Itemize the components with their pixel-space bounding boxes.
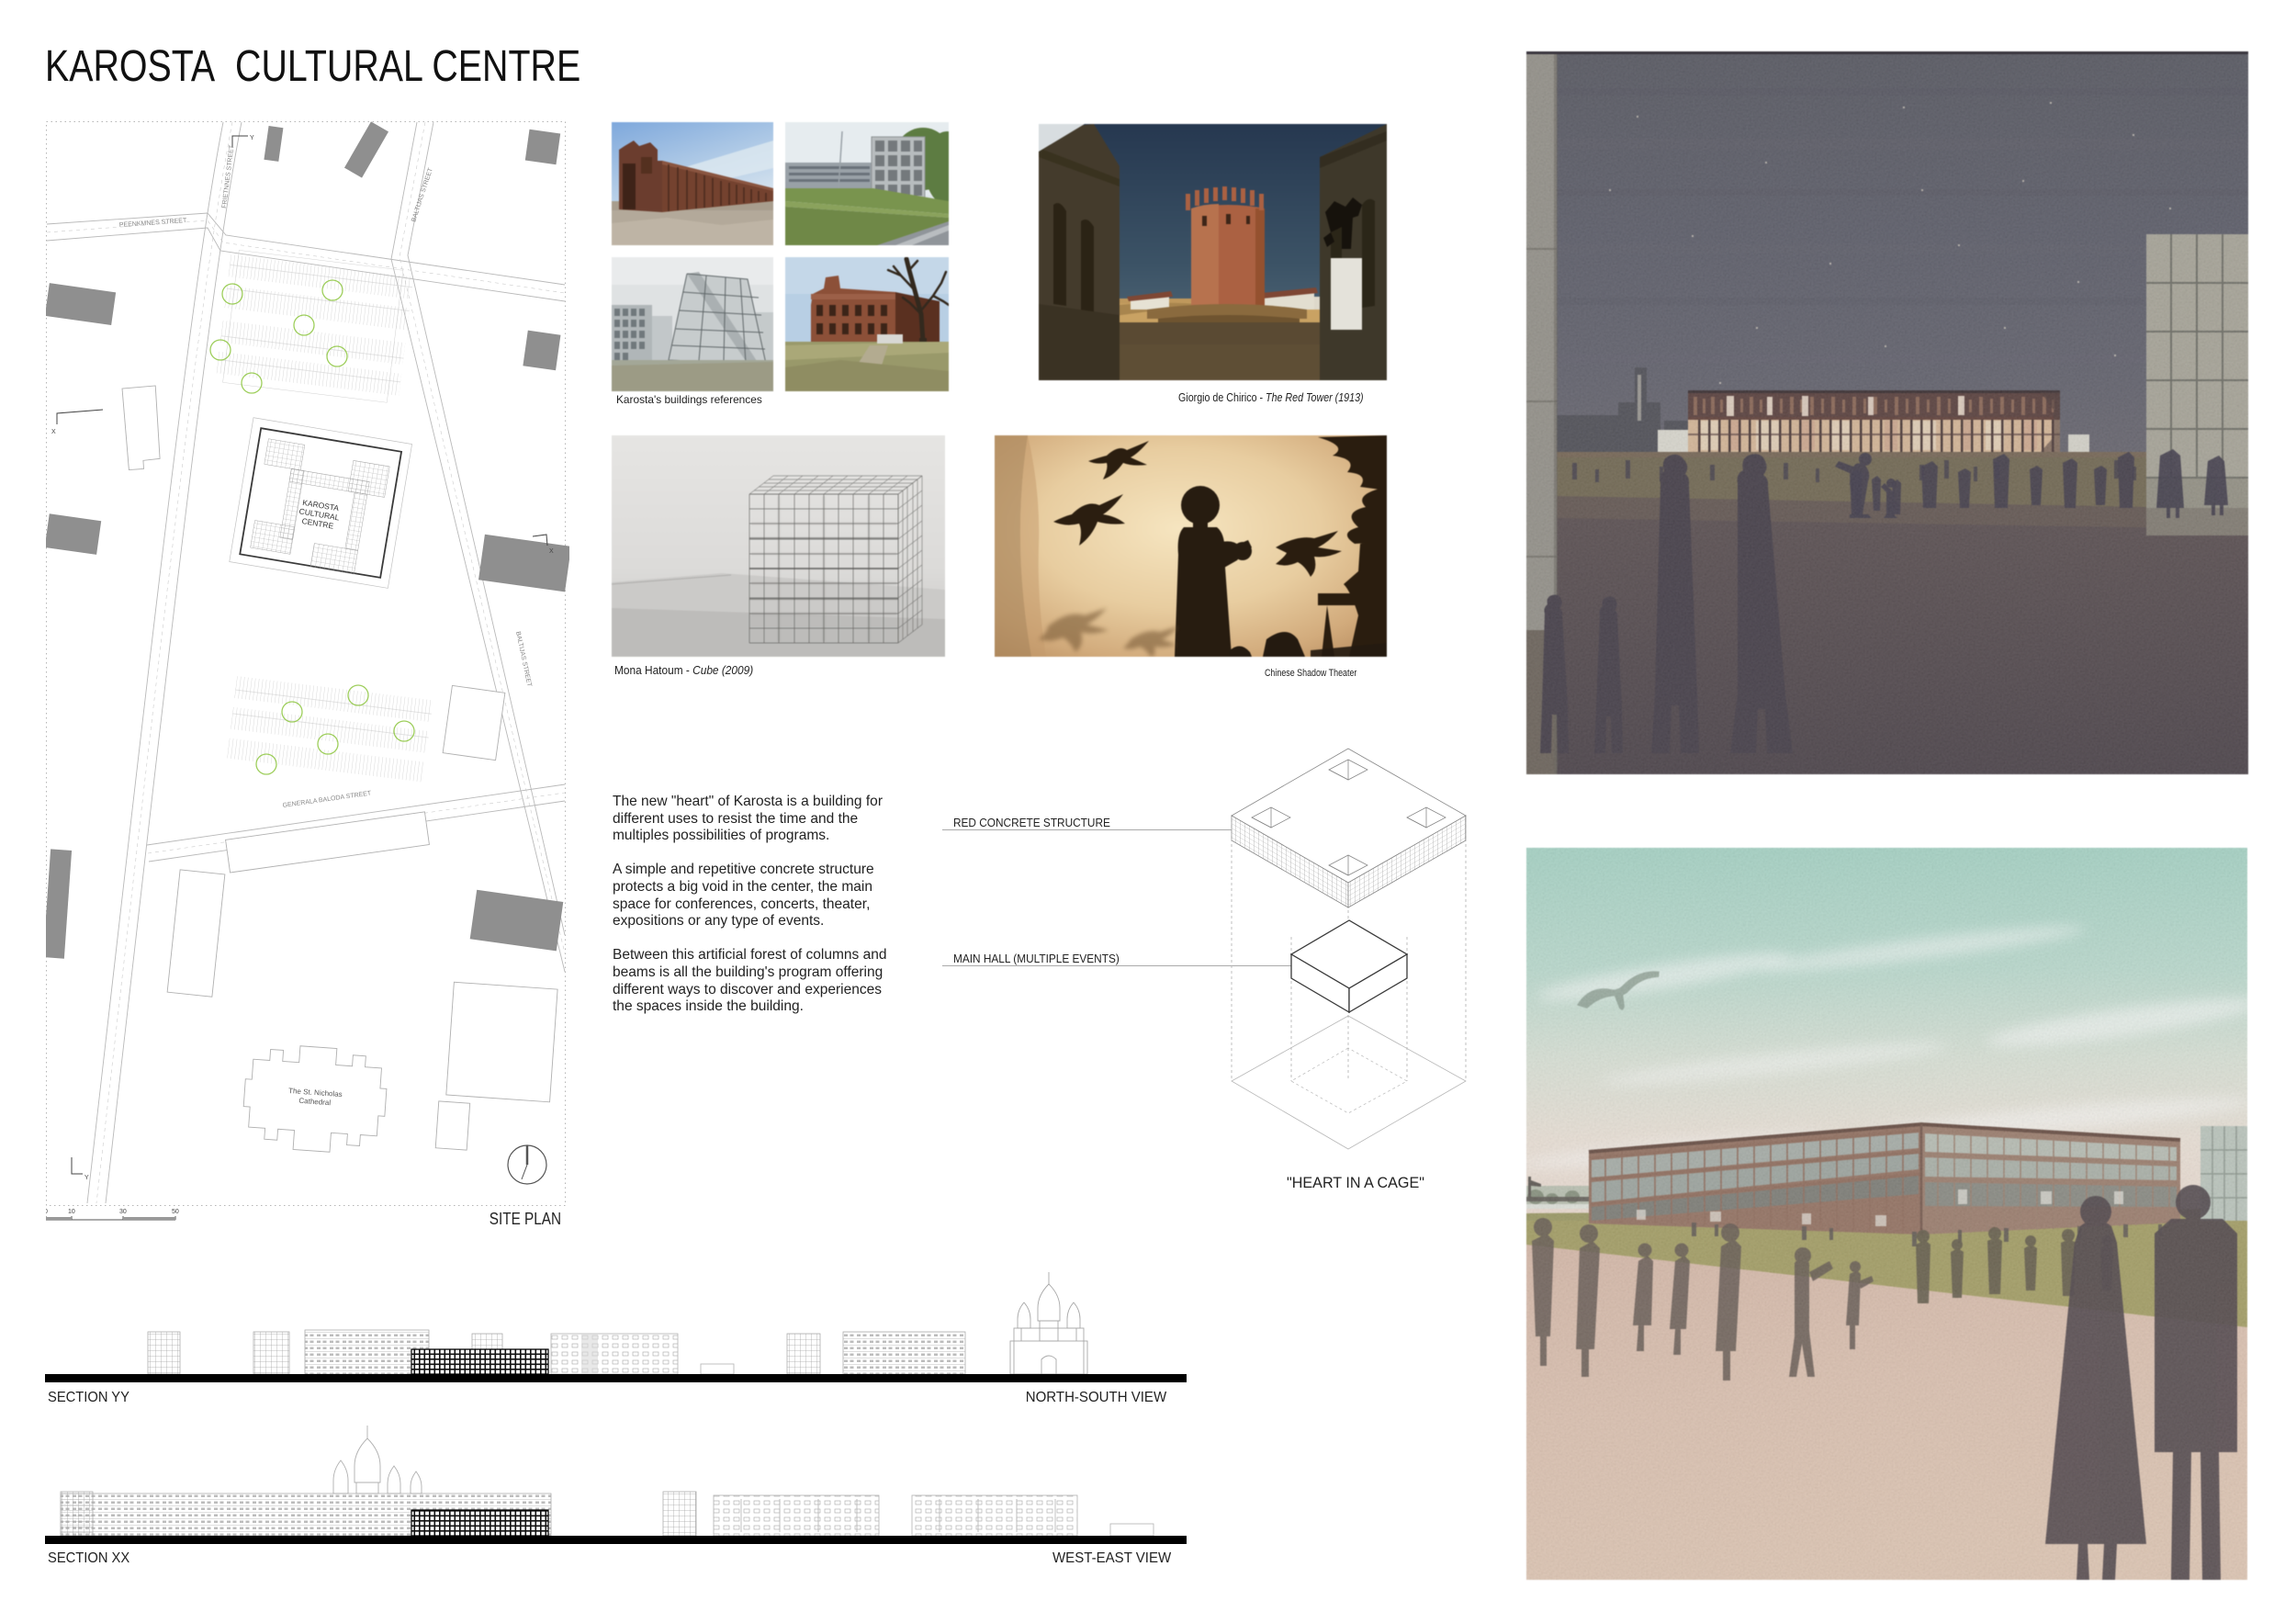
svg-text:FRIETNNES STREET: FRIETNNES STREET bbox=[221, 144, 235, 209]
svg-text:X: X bbox=[549, 548, 554, 555]
svg-text:GENERALA BALODA STREET: GENERALA BALODA STREET bbox=[282, 790, 372, 809]
svg-text:BALTIJAS STREET: BALTIJAS STREET bbox=[514, 631, 533, 688]
svg-text:BALTIJAS STREET: BALTIJAS STREET bbox=[411, 166, 434, 222]
svg-text:0: 0 bbox=[46, 1209, 48, 1215]
svg-text:PEENKMNES STREET: PEENKMNES STREET bbox=[119, 218, 188, 229]
svg-text:50: 50 bbox=[172, 1209, 179, 1215]
svg-text:Y: Y bbox=[250, 135, 254, 141]
svg-text:10: 10 bbox=[68, 1209, 75, 1215]
svg-text:30: 30 bbox=[119, 1209, 127, 1215]
svg-text:Y: Y bbox=[84, 1175, 89, 1181]
svg-text:X: X bbox=[51, 429, 56, 435]
